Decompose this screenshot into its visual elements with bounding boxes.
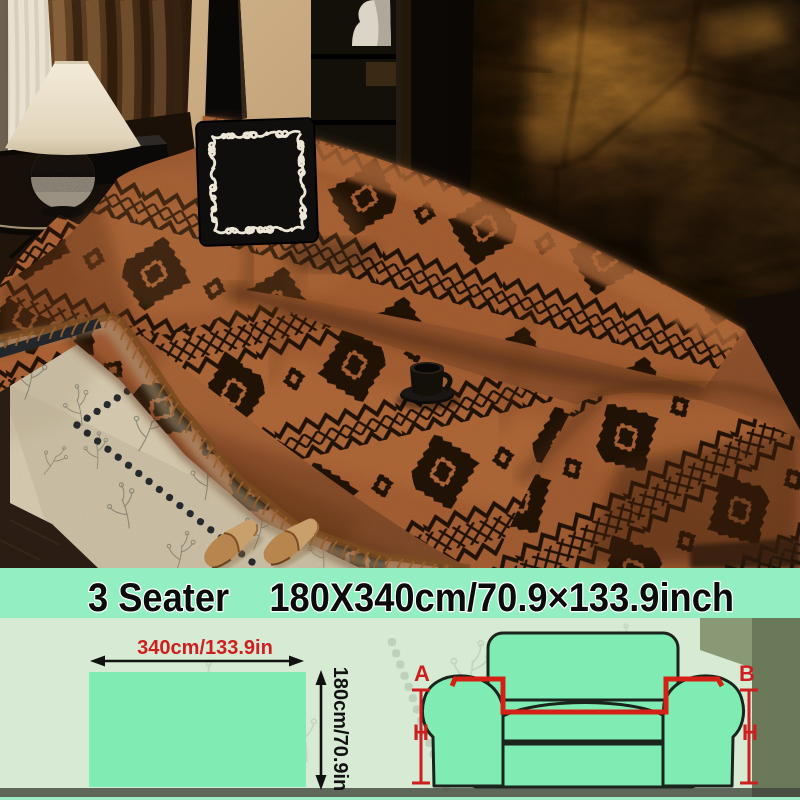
svg-text:A: A — [414, 661, 430, 686]
svg-text:340cm/133.9in: 340cm/133.9in — [137, 637, 273, 659]
svg-text:3 Seater 180X340cm/70.9×133: 3 Seater 180X340cm/70.9×133.9inch — [88, 576, 734, 620]
svg-text:180cm/70.9in: 180cm/70.9in — [329, 667, 351, 792]
svg-text:H: H — [742, 720, 758, 745]
svg-text:H: H — [413, 720, 429, 745]
svg-text:B: B — [739, 661, 755, 686]
